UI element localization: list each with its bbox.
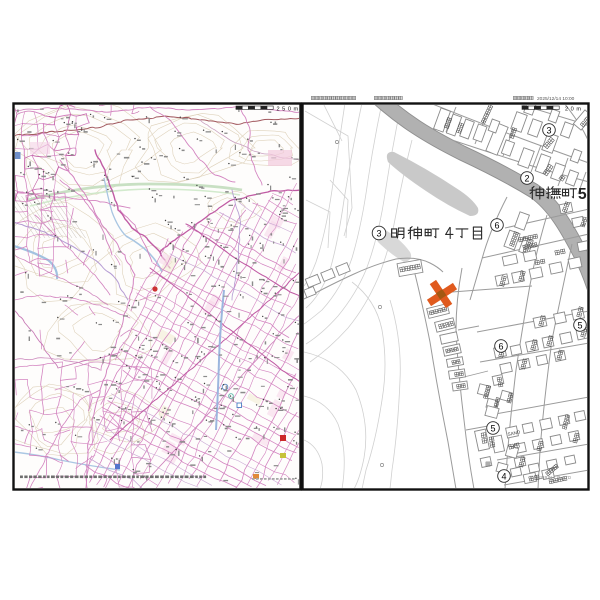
svg-text:3: 3 xyxy=(376,228,381,238)
svg-text:2 0 m: 2 0 m xyxy=(565,106,582,112)
svg-text:2025/12/14 10:00: 2025/12/14 10:00 xyxy=(537,96,575,102)
svg-text:3: 3 xyxy=(546,125,551,135)
svg-text:4: 4 xyxy=(501,471,506,481)
svg-text:2 5 0 m: 2 5 0 m xyxy=(277,106,299,112)
svg-text:5: 5 xyxy=(578,186,587,203)
svg-text:6: 6 xyxy=(494,220,499,230)
svg-text:(c)ZENRIN CO.,LTD: (c)ZENRIN CO.,LTD xyxy=(530,475,571,480)
svg-text:5: 5 xyxy=(577,320,582,330)
svg-text:5: 5 xyxy=(490,423,495,433)
svg-text:2: 2 xyxy=(524,173,529,183)
svg-text:6: 6 xyxy=(498,341,503,351)
